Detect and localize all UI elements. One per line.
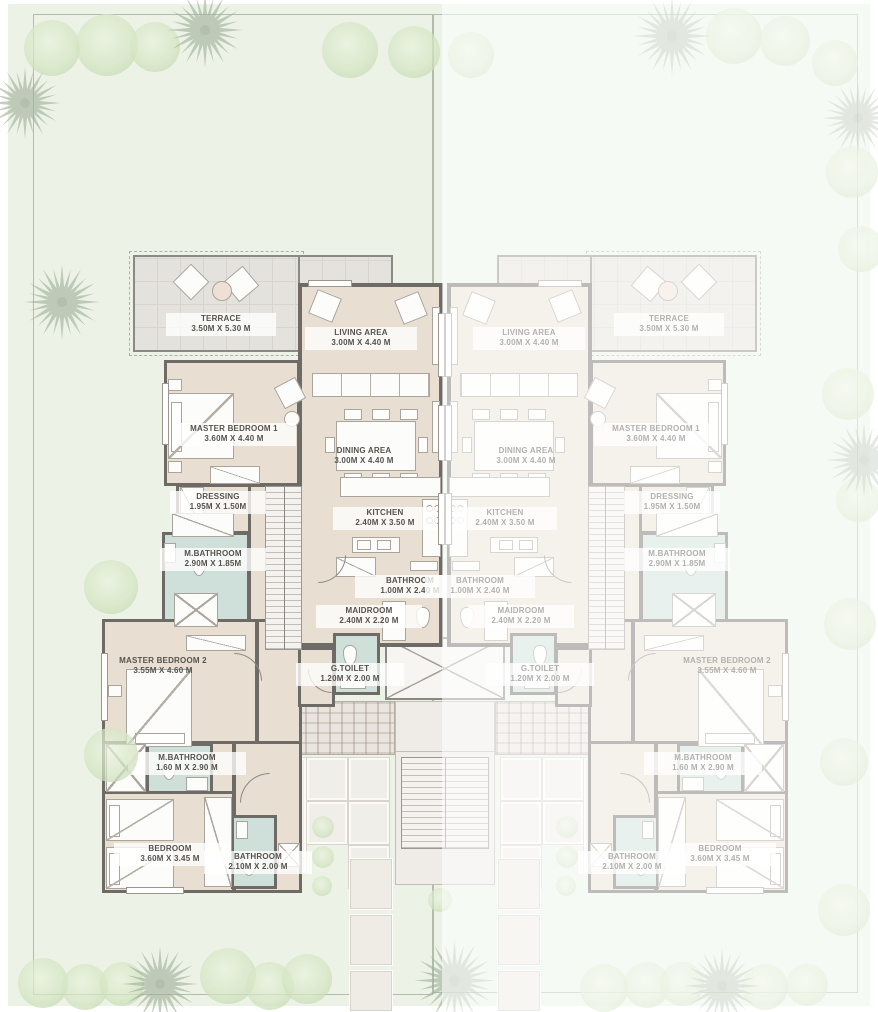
room-name: TERRACE xyxy=(168,314,274,324)
kitchen-counter xyxy=(449,477,550,497)
closet xyxy=(172,513,234,537)
bush-icon xyxy=(786,964,828,1006)
room-dims: 2.90M X 1.85M xyxy=(626,559,728,569)
room-name: M.BATHROOM xyxy=(130,753,244,763)
bush-icon xyxy=(760,16,810,66)
washbasin xyxy=(186,777,208,791)
room-dims: 2.90M X 1.85M xyxy=(162,559,264,569)
dining-chair xyxy=(528,409,546,420)
room-label-living: LIVING AREA 3.00M X 4.40 M xyxy=(473,327,585,350)
nightstand xyxy=(768,685,782,697)
bed xyxy=(106,799,174,841)
room-terrace xyxy=(133,255,300,352)
room-label-maidroom: MAIDROOM 2.40M X 2.20 M xyxy=(468,605,574,628)
palm-tree-icon xyxy=(412,938,497,1012)
room-dims: 3.50M X 5.30 M xyxy=(168,324,274,334)
bush-icon xyxy=(448,32,494,78)
bush-icon xyxy=(818,884,870,936)
room-name: LIVING AREA xyxy=(475,328,583,338)
room-label-bathroom-1: BATHROOM 1.00M X 2.40 M xyxy=(425,575,535,598)
room-label-bathroom-2: BATHROOM 2.10M X 2.00 M xyxy=(204,851,312,874)
bush-icon xyxy=(706,8,762,64)
room-terrace xyxy=(590,255,757,352)
room-dims: 1.20M X 2.00 M xyxy=(488,674,592,684)
bush-icon xyxy=(18,958,68,1008)
bush-icon xyxy=(282,954,332,1004)
room-dims: 2.40M X 2.20 M xyxy=(470,616,572,626)
room-dims: 1.00M X 2.40 M xyxy=(427,586,533,596)
room-label-master-bathroom-1: M.BATHROOM 2.90M X 1.85M xyxy=(624,548,730,571)
palm-tree-icon xyxy=(824,420,878,500)
room-dims: 2.40M X 3.50 M xyxy=(335,518,435,528)
sofa xyxy=(460,373,578,397)
bush-icon xyxy=(322,22,378,78)
room-name: G.TOILET xyxy=(488,664,592,674)
room-dims: 3.00M X 4.40 M xyxy=(307,338,415,348)
room-name: MAIDROOM xyxy=(318,606,420,616)
room-dims: 1.20M X 2.00 M xyxy=(298,674,402,684)
wardrobe xyxy=(210,466,260,484)
room-label-guest-toilet: G.TOILET 1.20M X 2.00 M xyxy=(486,663,594,686)
bed xyxy=(716,799,784,841)
room-label-bathroom-2: BATHROOM 2.10M X 2.00 M xyxy=(578,851,686,874)
window xyxy=(308,280,352,287)
bed xyxy=(126,669,192,747)
room-name: MASTER BEDROOM 1 xyxy=(596,424,716,434)
room-dims: 2.40M X 2.20 M xyxy=(318,616,420,626)
washbasin xyxy=(642,821,654,839)
unit-right: TERRACE 3.50M X 5.30 M LIVING AREA 3.00M… xyxy=(445,255,790,895)
room-name: DINING AREA xyxy=(310,446,418,456)
shower xyxy=(672,593,716,627)
window xyxy=(445,493,452,545)
nightstand xyxy=(708,379,722,391)
room-label-master-bathroom-1: M.BATHROOM 2.90M X 1.85M xyxy=(160,548,266,571)
wardrobe xyxy=(630,466,680,484)
bush-icon xyxy=(84,560,138,614)
internal-stairs xyxy=(588,486,625,650)
room-dims: 3.50M X 5.30 M xyxy=(616,324,722,334)
room-label-master-bathroom-2: M.BATHROOM 1.60 M X 2.90 M xyxy=(128,752,246,775)
window xyxy=(538,280,582,287)
room-name: LIVING AREA xyxy=(307,328,415,338)
room-label-terrace: TERRACE 3.50M X 5.30 M xyxy=(166,313,276,336)
room-dims: 1.60 M X 2.90 M xyxy=(646,763,760,773)
washbasin xyxy=(682,777,704,791)
window xyxy=(438,493,445,545)
bush-icon xyxy=(84,728,138,782)
room-dims: 2.40M X 3.50 M xyxy=(455,518,555,528)
room-name: KITCHEN xyxy=(455,508,555,518)
palm-tree-icon xyxy=(120,944,200,1012)
bush-icon xyxy=(822,368,874,420)
path-tile xyxy=(497,914,541,966)
nightstand xyxy=(708,461,722,473)
room-label-kitchen: KITCHEN 2.40M X 3.50 M xyxy=(333,507,437,530)
window xyxy=(438,313,445,377)
closet xyxy=(656,513,718,537)
dining-chair xyxy=(372,409,390,420)
internal-stairs xyxy=(265,486,302,650)
room-dims: 3.55M X 4.60 M xyxy=(670,666,784,676)
room-name: MASTER BEDROOM 2 xyxy=(106,656,220,666)
palm-tree-icon xyxy=(0,65,63,141)
room-name: MAIDROOM xyxy=(470,606,572,616)
room-name: DINING AREA xyxy=(472,446,580,456)
dining-chair xyxy=(472,409,490,420)
washbasin xyxy=(236,821,248,839)
sofa xyxy=(312,373,430,397)
nightstand xyxy=(168,461,182,473)
room-dims: 1.95M X 1.50M xyxy=(172,502,264,512)
room-dims: 3.60M X 4.40 M xyxy=(596,434,716,444)
dining-chair xyxy=(400,409,418,420)
window xyxy=(162,383,169,445)
bush-icon xyxy=(580,964,628,1012)
dining-chair xyxy=(344,409,362,420)
path-tile xyxy=(349,970,393,1012)
room-name: DRESSING xyxy=(172,492,264,502)
sink-basin xyxy=(377,540,391,550)
room-dims: 3.60M X 4.40 M xyxy=(174,434,294,444)
room-label-master-bedroom-1: MASTER BEDROOM 1 3.60M X 4.40 M xyxy=(172,423,296,446)
room-dims: 2.10M X 2.00 M xyxy=(580,862,684,872)
room-label-maidroom: MAIDROOM 2.40M X 2.20 M xyxy=(316,605,422,628)
palm-tree-icon xyxy=(22,262,102,342)
room-label-master-bathroom-2: M.BATHROOM 1.60 M X 2.90 M xyxy=(644,752,762,775)
unit-left: TERRACE 3.50M X 5.30 M LIVING AREA 3.00M… xyxy=(100,255,445,895)
nightstand xyxy=(168,379,182,391)
bed xyxy=(698,669,764,747)
room-dims: 1.95M X 1.50M xyxy=(626,502,718,512)
terrace-table xyxy=(212,281,232,301)
sink-basin xyxy=(499,540,513,550)
room-name: KITCHEN xyxy=(335,508,435,518)
window xyxy=(445,405,452,461)
palm-tree-icon xyxy=(820,80,878,156)
room-label-kitchen: KITCHEN 2.40M X 3.50 M xyxy=(453,507,557,530)
wardrobe xyxy=(644,635,704,651)
room-dims: 3.00M X 4.40 M xyxy=(310,456,418,466)
room-name: MASTER BEDROOM 2 xyxy=(670,656,784,666)
window xyxy=(438,405,445,461)
room-label-master-bedroom-2: MASTER BEDROOM 2 3.55M X 4.60 M xyxy=(104,655,222,678)
room-name: M.BATHROOM xyxy=(646,753,760,763)
room-label-master-bedroom-2: MASTER BEDROOM 2 3.55M X 4.60 M xyxy=(668,655,786,678)
shower xyxy=(174,593,218,627)
palm-tree-icon xyxy=(682,946,762,1012)
kitchen-counter xyxy=(340,477,441,497)
room-name: BATHROOM xyxy=(427,576,533,586)
palm-tree-icon xyxy=(630,0,714,78)
window xyxy=(721,383,728,445)
bush-icon xyxy=(388,26,440,78)
room-label-living: LIVING AREA 3.00M X 4.40 M xyxy=(305,327,417,350)
room-label-dining: DINING AREA 3.00M X 4.40 M xyxy=(308,445,420,468)
room-dims: 3.00M X 4.40 M xyxy=(472,456,580,466)
room-name: BATHROOM xyxy=(206,852,310,862)
terrace-table xyxy=(658,281,678,301)
room-label-guest-toilet: G.TOILET 1.20M X 2.00 M xyxy=(296,663,404,686)
room-name: M.BATHROOM xyxy=(626,549,728,559)
room-label-dressing: DRESSING 1.95M X 1.50M xyxy=(170,491,266,514)
bush-icon xyxy=(820,738,868,786)
wardrobe xyxy=(186,635,246,651)
room-dims: 2.10M X 2.00 M xyxy=(206,862,310,872)
nightstand xyxy=(108,685,122,697)
room-dims: 3.55M X 4.60 M xyxy=(106,666,220,676)
window xyxy=(126,887,184,894)
room-name: MASTER BEDROOM 1 xyxy=(174,424,294,434)
room-dims: 1.60 M X 2.90 M xyxy=(130,763,244,773)
bush-icon xyxy=(838,226,878,272)
floor-plan-canvas: TERRACE 3.50M X 5.30 M LIVING AREA 3.00M… xyxy=(0,0,878,1012)
bush-icon xyxy=(824,598,876,650)
window xyxy=(445,313,452,377)
room-name: G.TOILET xyxy=(298,664,402,674)
washbasin xyxy=(410,561,438,571)
room-label-dining: DINING AREA 3.00M X 4.40 M xyxy=(470,445,582,468)
room-dims: 3.00M X 4.40 M xyxy=(475,338,583,348)
room-name: BATHROOM xyxy=(580,852,684,862)
room-name: TERRACE xyxy=(616,314,722,324)
room-label-master-bedroom-1: MASTER BEDROOM 1 3.60M X 4.40 M xyxy=(594,423,718,446)
sink-basin xyxy=(357,540,371,550)
bush-icon xyxy=(76,14,138,76)
window xyxy=(706,887,764,894)
room-name: DRESSING xyxy=(626,492,718,502)
room-label-terrace: TERRACE 3.50M X 5.30 M xyxy=(614,313,724,336)
room-name: M.BATHROOM xyxy=(162,549,264,559)
washbasin xyxy=(452,561,480,571)
sink-basin xyxy=(519,540,533,550)
dining-chair xyxy=(500,409,518,420)
path-tile xyxy=(349,914,393,966)
palm-tree-icon xyxy=(165,0,245,70)
path-tile xyxy=(497,970,541,1012)
room-label-dressing: DRESSING 1.95M X 1.50M xyxy=(624,491,720,514)
